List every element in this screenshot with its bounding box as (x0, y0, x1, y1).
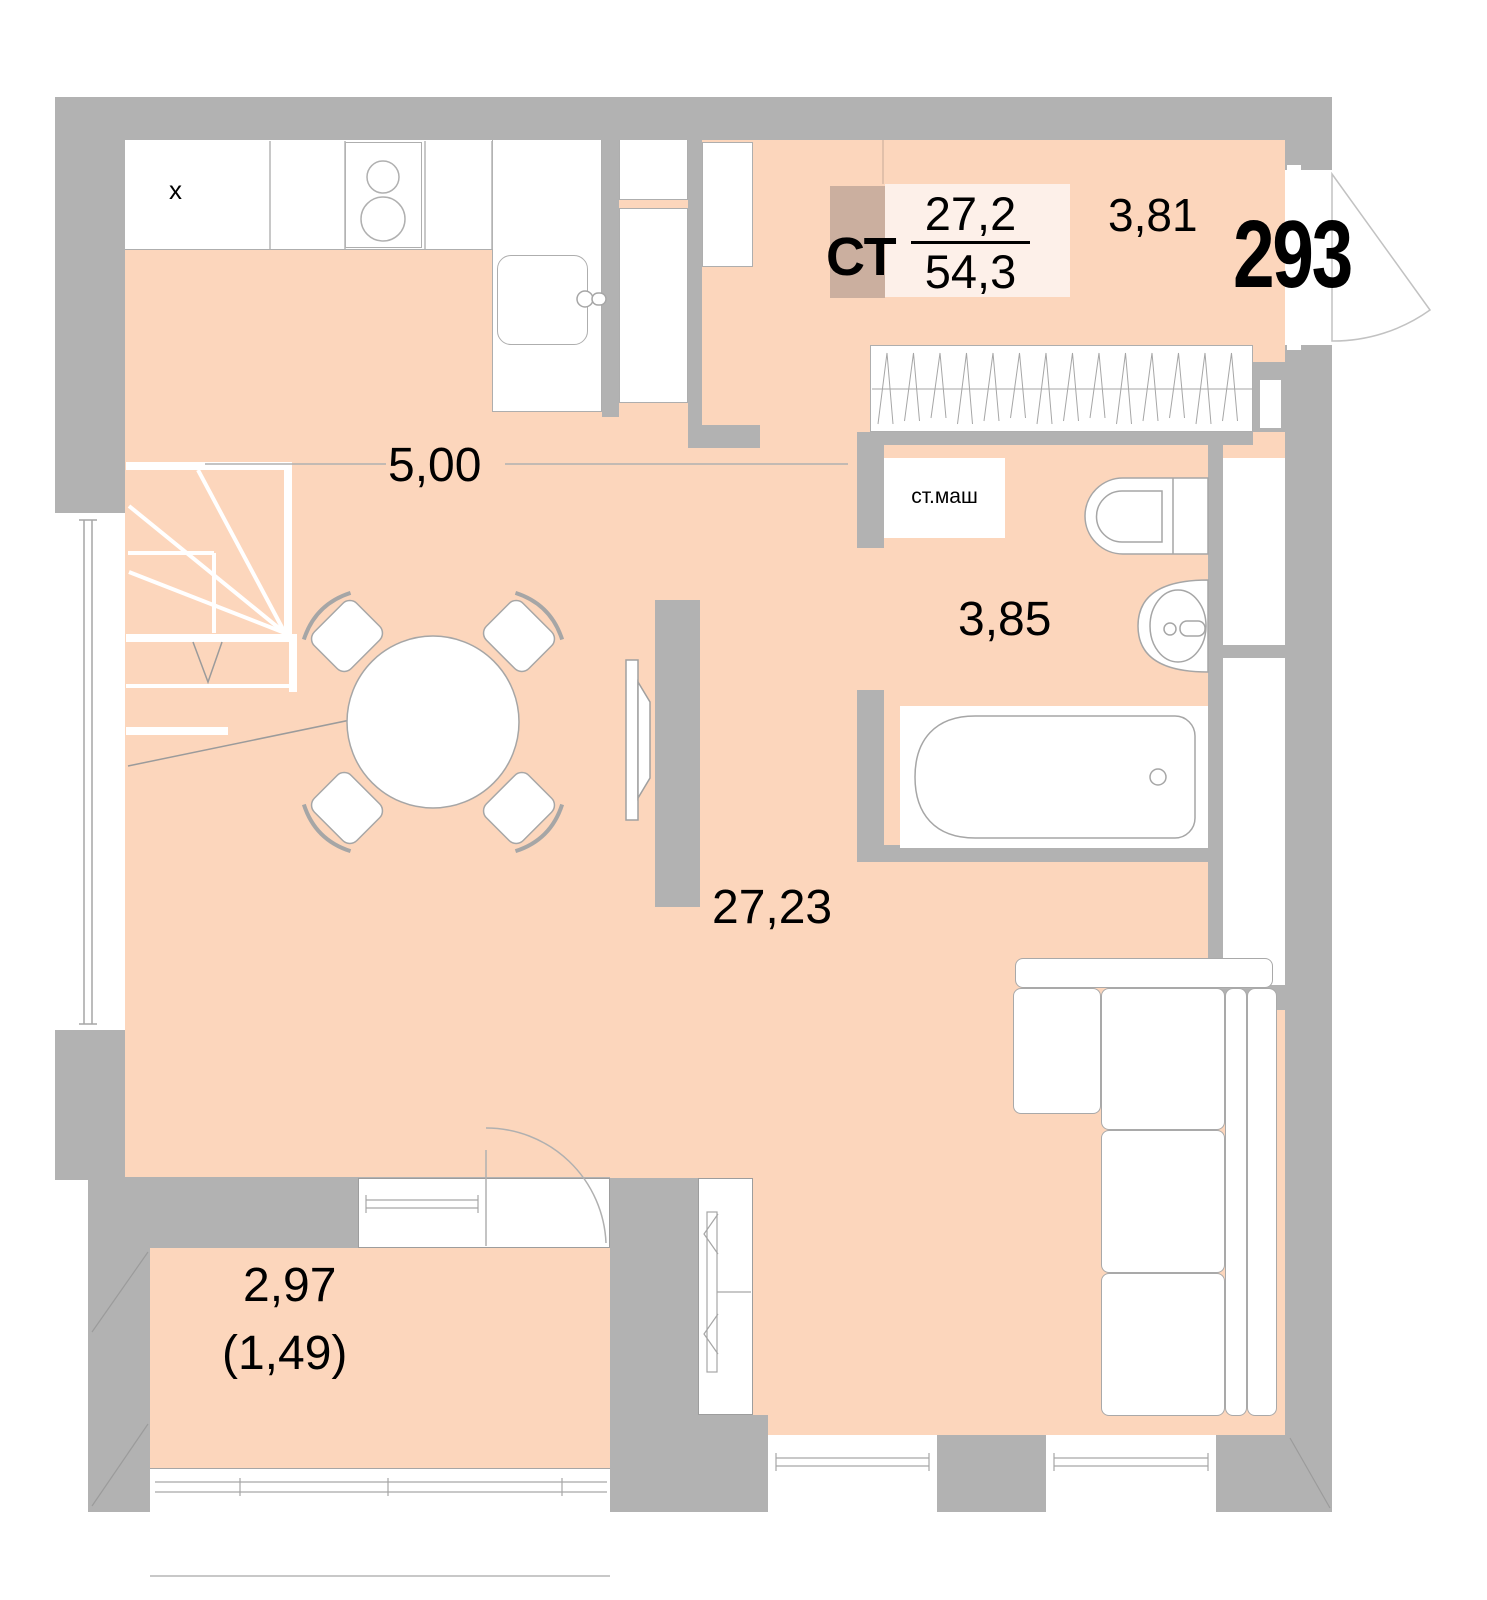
wall-right-main (1285, 345, 1332, 1435)
bottom-window-2 (1046, 1435, 1216, 1512)
sofa-chaise (1013, 988, 1101, 1114)
wall-bottom-corner (1216, 1435, 1332, 1512)
balcony-glazing (150, 1468, 610, 1578)
balcony-area-label: 2,97 (243, 1258, 336, 1313)
wall-kitchen-duct-1 (602, 140, 619, 417)
cabinet-mark: x (169, 175, 182, 206)
balcony-floor (150, 1248, 610, 1468)
duct-box-2 (619, 208, 688, 403)
wall-balcony-right (610, 1178, 698, 1512)
apartment-number: 293 (1233, 200, 1351, 310)
washer-label: ст.маш (884, 485, 1005, 509)
bathtub (900, 706, 1208, 848)
tv-partition (655, 600, 700, 907)
wall-left-lower (55, 1030, 125, 1180)
wardrobe-hanger-band (870, 345, 1253, 432)
window-left-wall (55, 513, 125, 1030)
kitchen-dim-label: 5,00 (388, 438, 481, 493)
duct-box-1 (619, 140, 688, 200)
living-area-label: 27,23 (712, 880, 832, 935)
wall-bath-left-upper (857, 443, 884, 548)
wall-balcony-left (88, 1248, 150, 1512)
wall-wardrobe-bottom (857, 432, 1253, 445)
sofa-seat-2 (1101, 1130, 1225, 1273)
wardrobe-right-notch (1260, 380, 1281, 428)
sofa-backrest-outer (1247, 988, 1277, 1416)
sofa-seat-3 (1101, 1273, 1225, 1416)
kitchen-sink (497, 255, 588, 345)
wall-duct-divider (1223, 645, 1285, 658)
hall-area-label: 3,81 (1108, 188, 1198, 242)
wall-bottom-chunk-left (698, 1415, 768, 1512)
bath-area-label: 3,85 (958, 592, 1051, 647)
sofa-armrest (1015, 958, 1273, 988)
wall-left-upper (55, 97, 125, 513)
type-label: СТ (826, 226, 897, 288)
wall-kitchen-foot (688, 425, 760, 448)
entry-closet (702, 142, 753, 267)
wall-bath-right (1208, 443, 1223, 1010)
area-living-label: 27,2 (913, 186, 1028, 241)
duct-box-4 (1223, 658, 1285, 985)
duct-box-3 (1223, 458, 1285, 645)
entry-wardrobe (698, 1178, 753, 1415)
wall-kitchen-duct-2 (688, 140, 702, 440)
balcony-area-coeff-label: (1,49) (222, 1326, 347, 1381)
bottom-window-1 (768, 1435, 937, 1512)
wall-top (55, 97, 1332, 140)
wall-bottom-pillar (937, 1435, 1046, 1512)
floor-plan: x СТ 27,2 54,3 3,81 293 5,00 ст.маш 3,85… (0, 0, 1487, 1600)
wall-right-top (1285, 97, 1332, 170)
balcony-window-unit (358, 1178, 610, 1248)
wall-bath-left-lower (857, 690, 884, 862)
stove (345, 142, 422, 248)
area-total-label: 54,3 (913, 244, 1028, 299)
sofa-backrest-inner (1225, 988, 1247, 1416)
sofa-seat-1 (1101, 988, 1225, 1130)
